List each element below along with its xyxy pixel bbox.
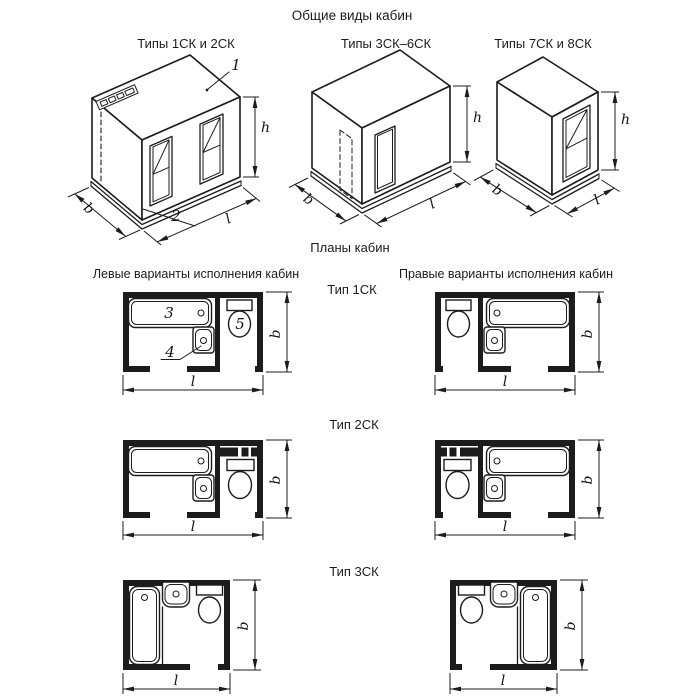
bathtub (130, 587, 160, 665)
toilet (227, 460, 254, 499)
washbasin (193, 475, 214, 501)
dim-l-label: l (191, 374, 195, 390)
washbasin (484, 475, 505, 501)
vent-block-icon (219, 448, 257, 457)
toilet (459, 585, 485, 623)
dimension-l: l (123, 673, 230, 694)
door-left (150, 136, 172, 206)
dimension-l: l (435, 519, 575, 540)
dim-l-label: l (223, 211, 234, 227)
dimension-b: b (233, 580, 261, 670)
dimension-l: l (435, 374, 575, 395)
callout-4-label: 4 (164, 343, 175, 361)
washbasin (484, 327, 505, 353)
dim-l-label: l (503, 519, 507, 535)
plans-title: Планы кабин (310, 240, 389, 255)
callout-3-label: 3 (164, 304, 174, 322)
dim-b-label: b (236, 621, 252, 630)
view-label-3: Типы 7СК и 8СК (494, 36, 592, 51)
dim-l-label: l (503, 374, 507, 390)
bathtub (487, 447, 570, 476)
door-front (375, 126, 395, 193)
figure-title: Общие виды кабин (292, 8, 413, 23)
vent-block-icon (441, 448, 479, 457)
door-right (200, 114, 223, 184)
dim-b-label: b (580, 329, 596, 338)
type-1sk-label: Тип 1СК (327, 282, 377, 297)
toilet (197, 585, 223, 623)
plan-1sk-left: 3 5 4 b l (123, 292, 292, 395)
iso-view-3sk-6sk: h b l (289, 50, 482, 227)
dim-b-label: b (563, 621, 579, 630)
dimension-b: b (266, 440, 292, 518)
dim-b-label: b (300, 191, 317, 209)
washbasin (491, 582, 518, 607)
bathtub (129, 447, 212, 476)
dim-b-label: b (80, 200, 97, 218)
dim-h-label: h (621, 112, 630, 128)
dimension-b: b (266, 292, 292, 372)
dimension-b: b (560, 580, 588, 670)
iso-view-1sk-2sk: 1 2 h b l (68, 55, 270, 245)
callout-1-label: 1 (231, 56, 241, 74)
dim-l-label: l (191, 519, 195, 535)
iso-view-7sk-8sk: h b l (474, 57, 630, 217)
dim-h-label: h (261, 120, 270, 136)
view-label-1: Типы 1СК и 2СК (137, 36, 235, 51)
left-variants-label: Левые варианты исполнения кабин (93, 267, 299, 281)
bathtub (487, 299, 570, 328)
washbasin (163, 582, 190, 607)
dimension-h-2: h (453, 86, 482, 162)
door-front (563, 105, 590, 182)
plan-3sk-right: b l (450, 580, 588, 694)
dim-b-label: b (268, 329, 284, 338)
plan-3sk-left: b l (123, 580, 261, 694)
type-3sk-label: Тип 3СК (329, 564, 379, 579)
dim-l-label: l (174, 673, 178, 689)
dim-l-label: l (427, 196, 438, 212)
plan-2sk-left: b l (123, 440, 292, 540)
dim-b-label: b (580, 475, 596, 484)
dimension-b: b (578, 440, 604, 518)
dimension-h-1: h (243, 97, 270, 177)
gost-cabin-drawing: Общие виды кабин Типы 1СК и 2СК Типы 3СК… (0, 0, 700, 700)
dimension-l: l (450, 673, 557, 694)
dim-b-label: b (268, 475, 284, 484)
toilet (446, 300, 471, 337)
view-label-2: Типы 3СК–6СК (341, 36, 432, 51)
dim-h-label: h (473, 110, 482, 126)
callout-5-label: 5 (235, 315, 245, 333)
dimension-l: l (123, 519, 263, 540)
type-2sk-label: Тип 2СК (329, 417, 379, 432)
dimension-b: b (578, 292, 604, 372)
dimension-h-3: h (601, 92, 630, 170)
bathtub (521, 587, 551, 665)
toilet (444, 460, 471, 499)
dim-l-label: l (501, 673, 505, 689)
right-variants-label: Правые варианты исполнения кабин (399, 267, 613, 281)
plan-2sk-right: b l (435, 440, 604, 540)
dimension-l: l (123, 374, 263, 395)
callout-2-label: 2 (170, 207, 181, 225)
plan-1sk-right: b l (435, 292, 604, 395)
